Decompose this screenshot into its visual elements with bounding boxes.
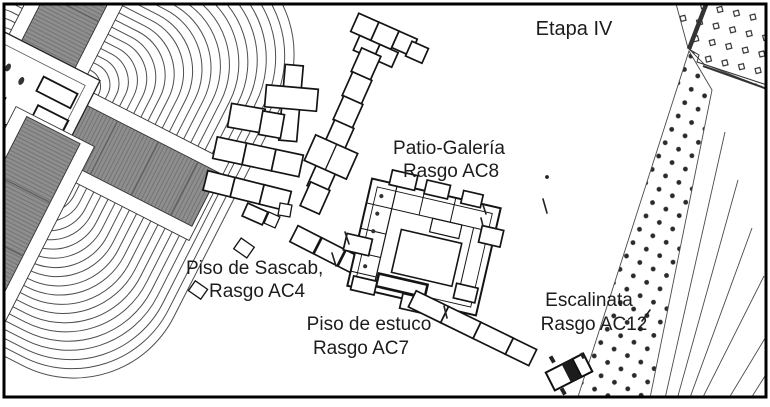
label-piso-estuco: Piso de estuco (307, 314, 432, 335)
label-rasgo-ac7: Rasgo AC7 (313, 338, 409, 359)
label-escalinata: Escalinata (545, 290, 633, 311)
trench-chain-upper (213, 137, 304, 177)
label-piso-sascab: Piso de Sascab, (186, 258, 323, 279)
trench-bar-west (227, 103, 285, 138)
stippled-floor-band (576, 51, 712, 403)
label-rasgo-ac8: Rasgo AC8 (403, 161, 499, 182)
label-etapa: Etapa IV (536, 18, 613, 40)
site-plan-figure: Etapa IV Patio-Galería Rasgo AC8 Piso de… (0, 0, 770, 407)
label-rasgo-ac4: Rasgo AC4 (209, 281, 306, 302)
site-plan-canvas: Etapa IV Patio-Galería Rasgo AC8 Piso de… (0, 0, 770, 407)
label-rasgo-ac12: Rasgo AC12 (541, 314, 648, 335)
label-patio-galeria: Patio-Galería (393, 138, 505, 159)
